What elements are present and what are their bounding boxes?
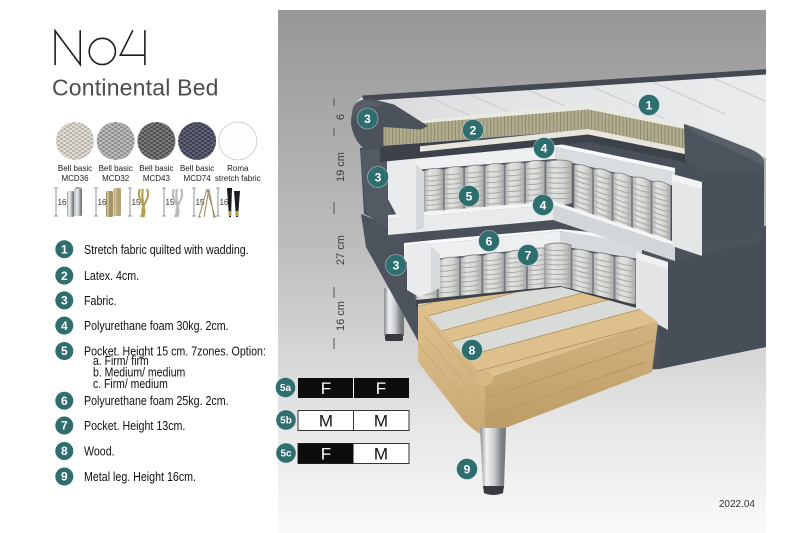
svg-text:MCD32: MCD32 [102,174,130,183]
svg-text:5c: 5c [280,449,292,460]
svg-text:Polyurethane foam 25kg. 2cm.: Polyurethane foam 25kg. 2cm. [84,393,229,408]
svg-text:stretch fabric: stretch fabric [215,174,261,183]
svg-text:M: M [374,445,388,464]
svg-text:F: F [321,445,331,464]
svg-text:4: 4 [61,319,68,333]
svg-text:3: 3 [364,112,371,126]
svg-text:4: 4 [541,141,548,155]
svg-text:3: 3 [61,294,68,308]
svg-text:5: 5 [466,189,473,203]
svg-text:1: 1 [61,243,68,257]
svg-text:M: M [374,412,388,431]
svg-text:1: 1 [646,98,653,112]
svg-text:8: 8 [469,343,476,357]
svg-text:Continental Bed: Continental Bed [52,75,219,101]
svg-text:16: 16 [98,198,107,207]
svg-text:F: F [376,379,386,398]
svg-text:Bell basic: Bell basic [139,164,173,173]
svg-text:Wood.: Wood. [84,444,115,459]
svg-text:MCD43: MCD43 [143,174,171,183]
svg-text:9: 9 [464,462,471,476]
svg-text:Bell basic: Bell basic [58,164,92,173]
svg-text:8: 8 [61,444,68,458]
svg-text:16: 16 [58,198,67,207]
svg-text:9: 9 [61,470,68,484]
svg-text:16: 16 [220,198,229,207]
svg-text:Metal leg. Height 16cm.: Metal leg. Height 16cm. [84,469,196,484]
svg-text:Polyurethane foam 30kg. 2cm.: Polyurethane foam 30kg. 2cm. [84,318,229,333]
svg-text:Stretch fabric quilted with wa: Stretch fabric quilted with wadding. [84,242,249,257]
svg-text:27 cm: 27 cm [335,235,347,265]
svg-text:2: 2 [61,269,68,283]
svg-text:Pocket. Height 13cm.: Pocket. Height 13cm. [84,418,185,433]
svg-text:19 cm: 19 cm [335,152,347,182]
svg-text:6: 6 [61,394,68,408]
svg-text:16 cm: 16 cm [335,301,347,331]
svg-text:6: 6 [486,234,493,248]
svg-text:Latex. 4cm.: Latex. 4cm. [84,268,139,283]
svg-text:4: 4 [540,198,547,212]
svg-text:MCD74: MCD74 [184,174,212,183]
svg-text:7: 7 [525,248,532,262]
svg-text:Bell basic: Bell basic [180,164,214,173]
svg-text:3: 3 [375,170,382,184]
svg-text:3: 3 [393,258,400,272]
svg-text:2: 2 [470,123,477,137]
svg-text:5b: 5b [280,416,292,427]
svg-text:2022.04: 2022.04 [719,499,756,510]
svg-text:Fabric.: Fabric. [84,293,117,308]
svg-text:7: 7 [61,419,68,433]
svg-text:Bell basic: Bell basic [99,164,133,173]
svg-text:5: 5 [61,344,68,358]
svg-text:Roma: Roma [227,164,249,173]
svg-text:5a: 5a [280,383,292,394]
svg-text:6: 6 [335,114,347,120]
svg-text:MCD36: MCD36 [61,174,89,183]
svg-text:c. Firm/ medium: c. Firm/ medium [93,377,168,391]
svg-text:M: M [319,412,333,431]
svg-text:F: F [321,379,331,398]
